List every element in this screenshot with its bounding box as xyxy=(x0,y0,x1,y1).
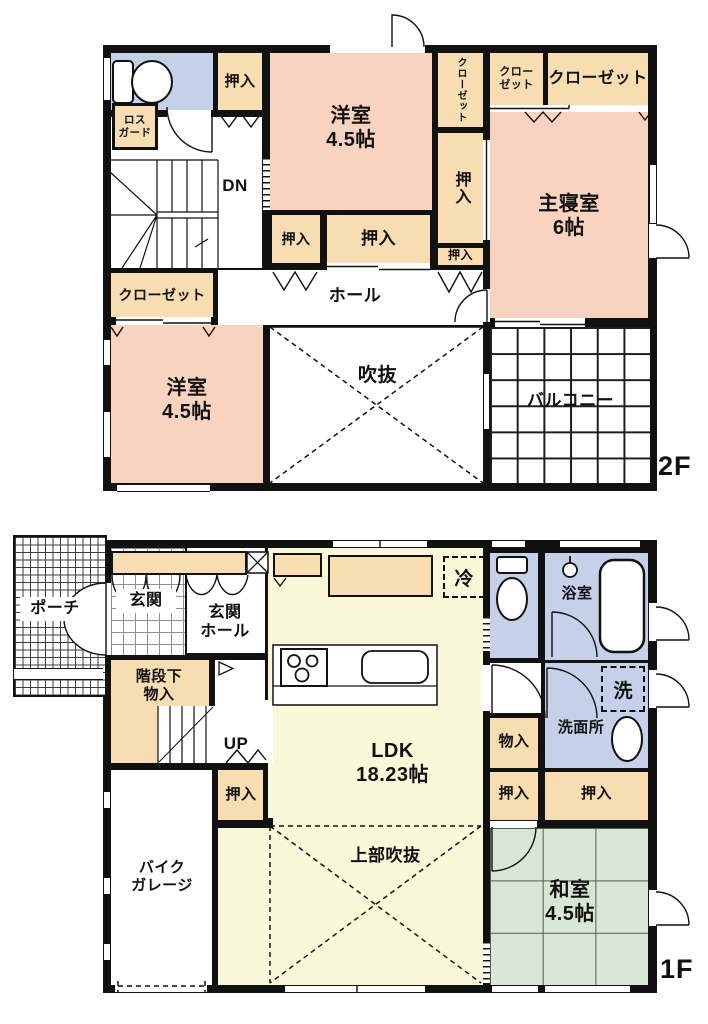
refrigerator-box: 冷 xyxy=(443,556,485,598)
door-opening-1f-entrance xyxy=(101,583,111,655)
slider-2f-oshiire-right xyxy=(483,140,490,240)
door-opening-1f-bath-out xyxy=(649,603,657,641)
label-2f-closet-wide: クローゼット xyxy=(548,53,648,105)
door-arc-2f-right-out xyxy=(656,225,689,258)
label-1f-genkan-hall: 玄関ホール xyxy=(188,596,262,650)
label-2f-closet-small: クローゼット xyxy=(490,53,543,105)
window-2f-bottom xyxy=(117,484,210,492)
washing-machine-box: 洗 xyxy=(601,666,645,712)
door-arc-1f-washitsu-out xyxy=(656,892,689,925)
label-1f-kaidanshita: 階段下物入 xyxy=(113,662,205,710)
label-1f-mononyu: 物入 xyxy=(490,729,538,755)
door-opening-2f-top xyxy=(330,44,425,53)
label-1f-ldk: LDK18.23帖 xyxy=(330,733,455,795)
label-2f-closet-vertical: クローゼット xyxy=(438,53,483,127)
wall-1f-oshiire-nub xyxy=(263,818,273,828)
label-1f-garage: バイクガレージ xyxy=(118,852,206,902)
label-1f-up: UP xyxy=(216,731,256,757)
window-1f-top-bath xyxy=(560,540,640,548)
room-1f-corridor xyxy=(490,663,541,713)
shoe-cabinet xyxy=(111,551,247,575)
label-1f-jobu-fukinuke: 上部吹抜 xyxy=(328,843,443,869)
label-2f-shinshitsu: 主寝室6帖 xyxy=(504,185,634,249)
label-2f-oshiire-right-v: 押入 xyxy=(438,133,483,243)
window-2f-yoshitsu-top-left xyxy=(263,158,270,210)
label-2f-dn: DN xyxy=(212,174,258,198)
door-opening-1f-wash-out xyxy=(649,670,657,708)
label-2f-closet-bl: クローゼット xyxy=(111,283,213,307)
window-2f-shinshitsu-right xyxy=(649,165,657,223)
label-2f-yoshitsu-b: 洋室4.5帖 xyxy=(122,370,252,432)
label-2f-oshiire-right-s: 押入 xyxy=(438,245,483,266)
window-1f-ldk-washitsu-wall xyxy=(483,942,490,983)
door-opening-2f-shinshitsu xyxy=(482,289,490,322)
slider-2f-balcony xyxy=(495,318,585,327)
window-2f-yoshitsub-left1 xyxy=(103,340,111,365)
door-arc-1f-bath-out xyxy=(656,607,689,640)
label-1f-genkan: 玄関 xyxy=(116,589,176,613)
floor2-tag: 2F xyxy=(658,451,692,482)
label-1f-yokushitsu: 浴室 xyxy=(545,582,609,606)
room-1f-ldk-west xyxy=(218,828,268,985)
label-2f-losguard: ロスガード xyxy=(112,103,158,150)
label-2f-fukinuke: 吹抜 xyxy=(335,362,420,390)
washing-machine-label: 洗 xyxy=(613,676,632,703)
door-arc-1f-wash-out xyxy=(656,674,689,707)
slider-2f-closets xyxy=(490,105,648,112)
door-opening-1f-washitsu-out xyxy=(649,890,657,926)
label-2f-balcony: バルコニー xyxy=(498,388,643,414)
door-opening-2f-right xyxy=(649,224,657,258)
room-2f-fukinuke xyxy=(270,327,483,483)
door-arc-2f-top xyxy=(392,15,424,47)
wall-1f-kaidan-divider xyxy=(209,660,215,706)
opening-1f-corridor xyxy=(481,665,492,711)
window-1f-ldk-toilet-wall xyxy=(483,617,490,651)
refrigerator-label: 冷 xyxy=(454,564,473,591)
window-1f-bottom-washitsu1 xyxy=(492,985,538,993)
label-1f-oshiire-r2: 押入 xyxy=(545,781,648,807)
door-opening-1f-washitsu xyxy=(490,821,537,828)
window-2f-void-balcony xyxy=(483,374,490,429)
label-1f-porch: ポーチ xyxy=(20,597,90,621)
window-1f-top-ldk xyxy=(333,540,427,548)
porch-step xyxy=(14,668,103,680)
room-1f-yokushitsu xyxy=(545,553,648,660)
window-1f-garage1 xyxy=(103,792,111,808)
ldk-cabinet-small xyxy=(273,553,322,577)
label-1f-oshiire-r1: 押入 xyxy=(490,781,538,807)
opening-1f-hall-ldk xyxy=(263,700,273,763)
door-opening-2f-toilet xyxy=(167,110,211,117)
floor1-tag: 1F xyxy=(660,954,694,985)
label-2f-oshiire-mid-w: 押入 xyxy=(327,215,430,263)
label-2f-oshiire-top: 押入 xyxy=(218,53,262,110)
ldk-cabinet-large xyxy=(328,555,433,597)
window-1f-top-toilet xyxy=(492,540,525,548)
window-1f-bottom-washitsu2 xyxy=(545,985,630,993)
room-1f-stairs xyxy=(158,706,215,763)
window-1f-garage2 xyxy=(103,878,111,894)
room-2f-toilet xyxy=(111,53,213,110)
label-2f-yoshitsu-top: 洋室4.5帖 xyxy=(286,98,416,160)
room-1f-toilet xyxy=(490,553,538,658)
window-2f-toilet-left xyxy=(103,58,111,100)
window-2f-yoshitsub-left2 xyxy=(103,412,111,457)
slider-2f-oshiire-wide xyxy=(327,263,430,271)
label-2f-oshiire-mid-s: 押入 xyxy=(272,215,320,263)
floorplan-canvas: 冷 洗 xyxy=(0,0,708,1024)
label-1f-oshiire-left: 押入 xyxy=(218,782,264,808)
label-2f-hall: ホール xyxy=(310,283,400,309)
window-1f-bottom-ldk xyxy=(285,985,425,993)
garage-door-opening xyxy=(115,980,207,992)
label-1f-senmenjo: 洗面所 xyxy=(543,716,619,740)
slider-2f-closet-bl xyxy=(116,317,211,325)
window-1f-garage3 xyxy=(103,944,111,960)
label-1f-washitsu: 和室4.5帖 xyxy=(505,872,635,934)
